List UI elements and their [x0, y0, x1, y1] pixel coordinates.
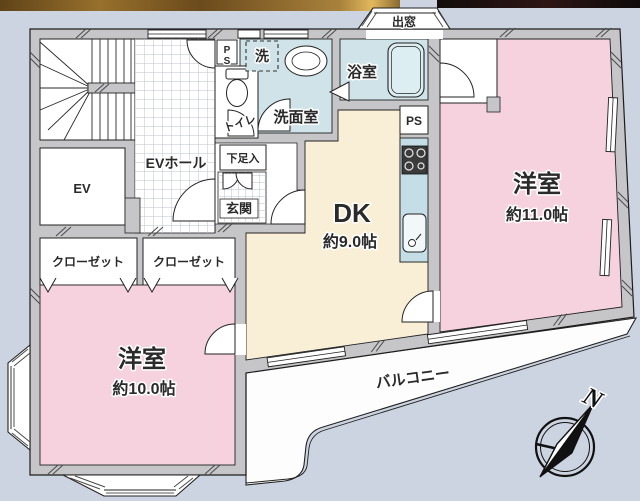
label-washer: 洗	[255, 48, 269, 64]
label-ev-hall: EVホール	[146, 155, 207, 171]
staircase	[40, 39, 143, 140]
label-washroom: 洗面室	[273, 108, 318, 126]
label-bathroom: 浴室	[347, 63, 377, 81]
bathtub-icon	[388, 43, 424, 97]
label-ev: EV	[73, 181, 91, 196]
label-western10-size: 約10.0帖	[112, 379, 175, 398]
bay-window-left	[8, 345, 30, 450]
washbasin-icon	[285, 46, 327, 76]
floorplan-svg: EVホール EV PS 洗 洗面室 浴室 出窓 PS トイレ 下足入 玄関 DK…	[0, 0, 640, 501]
western-room-10	[40, 285, 235, 465]
label-shoe-cabinet: 下足入	[227, 152, 260, 165]
floorplan-image: EVホール EV PS 洗 洗面室 浴室 出窓 PS トイレ 下足入 玄関 DK…	[0, 0, 640, 501]
wood-photo-strip	[0, 0, 400, 11]
label-dk: DK	[333, 198, 371, 228]
stove-icon	[402, 146, 427, 174]
label-ps-upper: PS	[222, 45, 233, 67]
dark-photo-strip	[437, 0, 640, 8]
label-closet-left: クローゼット	[52, 254, 124, 269]
label-western11-size: 約11.0帖	[506, 205, 568, 224]
label-western11: 洋室	[513, 170, 561, 198]
label-western10: 洋室	[118, 345, 166, 373]
label-dk-size: 約9.0帖	[323, 232, 377, 251]
kitchen-sink-icon	[403, 214, 426, 252]
wall-pillar	[125, 198, 140, 233]
label-entrance: 玄関	[226, 201, 252, 216]
wall-stub	[487, 97, 500, 112]
label-ps-kitchen: PS	[406, 114, 422, 128]
label-closet-right: クローゼット	[153, 254, 225, 269]
toilet-icon	[226, 69, 248, 107]
label-bay-window: 出窓	[392, 14, 416, 29]
